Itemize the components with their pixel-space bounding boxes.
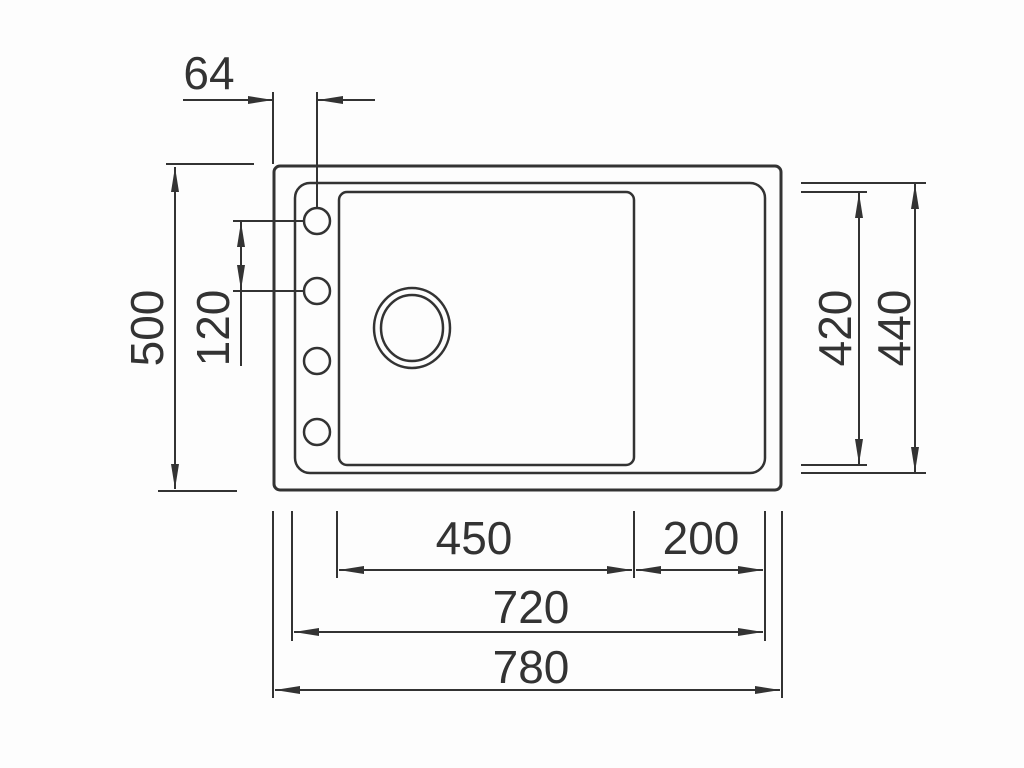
tap-hole-2 <box>304 278 330 304</box>
tap-holes <box>304 208 330 445</box>
dim-label-780: 780 <box>493 641 570 693</box>
diagram-canvas: 64 500 120 420 440 <box>0 0 1024 768</box>
drain <box>374 288 450 368</box>
dim-drainer-width: 200 <box>636 511 765 641</box>
drain-outer-circle <box>374 288 450 368</box>
dim-bowl-depth: 420 <box>801 192 867 465</box>
dim-label-200: 200 <box>663 512 740 564</box>
sink-dimension-diagram: 64 500 120 420 440 <box>0 0 1024 768</box>
sink-outer-edge <box>274 166 781 490</box>
dim-label-450: 450 <box>436 512 513 564</box>
dim-label-720: 720 <box>493 581 570 633</box>
tap-hole-3 <box>304 348 330 374</box>
sink-rim-edge <box>295 183 765 473</box>
tap-hole-1 <box>304 208 330 234</box>
dim-tap-hole-spacing: 120 <box>187 221 304 366</box>
dim-bowl-width: 450 <box>337 511 634 578</box>
dim-label-64: 64 <box>183 47 234 99</box>
dim-label-500: 500 <box>121 290 173 367</box>
dim-label-440: 440 <box>868 290 920 367</box>
sink-outline <box>274 166 781 490</box>
drain-inner-circle <box>381 295 443 361</box>
dim-label-420: 420 <box>809 290 861 367</box>
bowl-edge <box>339 192 634 465</box>
dim-label-120: 120 <box>187 290 239 367</box>
tap-hole-4 <box>304 419 330 445</box>
